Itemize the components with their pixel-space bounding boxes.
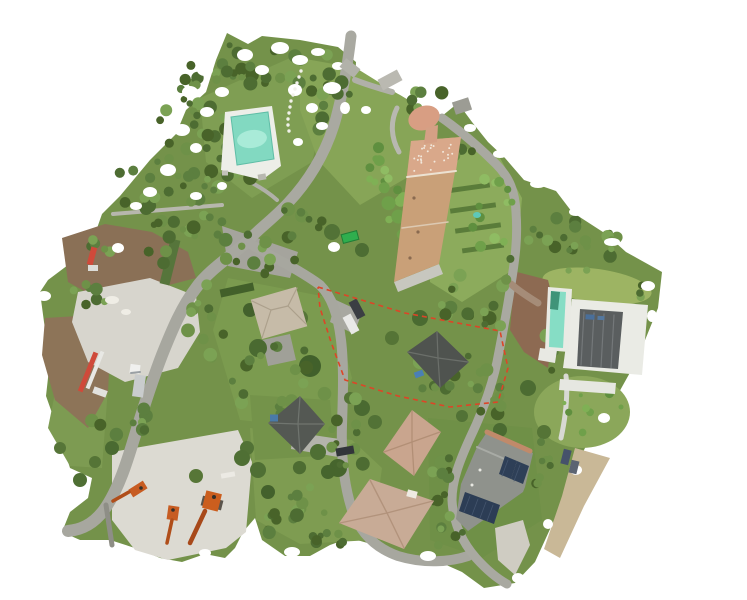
tree: [468, 223, 477, 232]
tree: [355, 243, 369, 257]
tree: [90, 283, 103, 296]
tree: [636, 289, 644, 297]
tree: [144, 247, 154, 257]
tree: [54, 442, 66, 454]
tree: [219, 330, 228, 339]
skylight: [585, 314, 594, 319]
mosaic-hole: [190, 192, 202, 200]
tree: [165, 139, 174, 148]
tree: [290, 256, 299, 265]
tree: [140, 425, 150, 435]
tree: [180, 74, 191, 85]
tree: [73, 473, 87, 487]
excavator-cab: [139, 486, 143, 490]
tree: [101, 246, 108, 253]
tree: [163, 230, 176, 243]
tree: [260, 270, 269, 279]
chimney: [416, 230, 419, 233]
tree: [407, 95, 418, 106]
tree: [244, 231, 252, 239]
tree: [520, 380, 536, 396]
tree: [324, 224, 340, 240]
tree: [579, 429, 587, 437]
tree: [437, 468, 449, 480]
excavator-body: [167, 505, 180, 520]
chimney: [412, 196, 415, 199]
tree: [81, 300, 91, 310]
tree: [288, 231, 297, 240]
mosaic-hole: [647, 310, 657, 322]
tree: [481, 321, 488, 328]
tree: [379, 182, 390, 193]
mosaic-hole: [182, 86, 198, 98]
tree: [560, 234, 567, 241]
tree: [415, 87, 426, 98]
mosaic-hole: [306, 103, 318, 113]
tree: [195, 300, 202, 307]
mosaic-hole: [361, 106, 371, 114]
mosaic-hole: [328, 242, 340, 252]
tree: [569, 221, 581, 233]
tree: [168, 216, 180, 228]
mosaic-hole: [512, 573, 524, 583]
tree: [454, 269, 467, 282]
mosaic-hole: [215, 87, 229, 97]
tree: [317, 216, 326, 225]
tree: [537, 425, 551, 439]
stepping-stone: [299, 69, 302, 72]
tree: [238, 74, 245, 81]
mosaic-hole: [493, 150, 507, 158]
tree: [438, 301, 446, 309]
tree: [321, 509, 328, 516]
chimney: [408, 256, 411, 259]
tree: [201, 183, 207, 189]
tree: [70, 286, 78, 294]
tree: [180, 226, 186, 232]
tree: [160, 245, 172, 257]
stepping-stone: [287, 129, 290, 132]
mosaic-hole: [340, 102, 350, 114]
tree: [312, 535, 322, 545]
tree: [120, 197, 131, 208]
tree: [297, 208, 306, 217]
tree: [299, 361, 313, 375]
tree: [539, 458, 546, 465]
skylight: [597, 316, 604, 320]
tree: [475, 241, 486, 252]
rubble: [105, 296, 119, 304]
tree: [89, 456, 101, 468]
tree: [250, 462, 266, 478]
tree: [154, 219, 163, 228]
tree: [263, 526, 276, 539]
tree: [535, 473, 544, 482]
tree: [219, 233, 233, 247]
mosaic-hole: [464, 124, 476, 132]
stepping-stone: [293, 87, 296, 90]
tree: [427, 466, 438, 477]
tree: [204, 176, 211, 183]
tree: [220, 253, 232, 265]
tree: [218, 217, 227, 226]
tree: [180, 182, 187, 189]
tree: [524, 236, 533, 245]
tree: [247, 256, 260, 269]
tree: [434, 541, 443, 550]
tree: [187, 100, 193, 106]
tree: [445, 454, 453, 462]
tree: [451, 531, 461, 541]
orthomosaic-image: [0, 0, 747, 600]
tree: [198, 334, 209, 345]
tree: [374, 155, 385, 166]
mosaic-hole: [143, 187, 157, 197]
mosaic-hole: [569, 208, 583, 216]
mosaic-hole: [543, 519, 553, 529]
tree: [530, 226, 537, 233]
tree: [380, 166, 389, 175]
tree: [245, 62, 255, 72]
tree: [495, 320, 506, 331]
excavator-cab: [171, 508, 175, 512]
tree: [204, 304, 213, 313]
small-pond: [473, 212, 481, 218]
tree: [326, 442, 337, 453]
tree: [384, 174, 392, 182]
mosaic-hole: [293, 138, 303, 146]
tarp: [270, 415, 278, 422]
tree: [202, 129, 214, 141]
tree: [306, 216, 313, 223]
stepping-stone: [286, 123, 289, 126]
mosaic-hole: [604, 238, 620, 246]
tree: [412, 310, 428, 326]
stepping-stone: [295, 81, 298, 84]
tree: [110, 428, 123, 441]
tree: [461, 307, 474, 320]
tree: [310, 444, 326, 460]
tree: [319, 101, 328, 110]
tree: [212, 75, 221, 84]
tree: [445, 511, 455, 521]
stepping-stone: [291, 93, 294, 96]
tree: [189, 469, 203, 483]
tree: [281, 207, 288, 214]
tree: [468, 147, 476, 155]
tree: [190, 120, 199, 129]
tree: [501, 275, 511, 285]
tree: [353, 429, 361, 437]
tree: [145, 173, 155, 183]
tree: [187, 220, 201, 234]
tree: [238, 243, 245, 250]
tree: [435, 86, 448, 99]
mosaic-hole: [190, 143, 202, 153]
tree: [439, 308, 451, 320]
mosaic-hole: [271, 42, 289, 54]
tree: [164, 187, 174, 197]
tree: [334, 530, 342, 538]
tree: [566, 268, 572, 274]
tree: [562, 401, 566, 405]
tree: [82, 280, 91, 289]
mosaic-hole: [200, 107, 214, 117]
tree: [508, 199, 515, 206]
tree: [115, 168, 125, 178]
tree: [500, 238, 508, 246]
tree: [183, 171, 194, 182]
tree: [437, 525, 444, 532]
tree: [201, 279, 212, 290]
tree: [203, 144, 211, 152]
tree: [300, 347, 308, 355]
tree: [356, 457, 370, 471]
tree: [229, 378, 236, 385]
tree: [290, 508, 304, 522]
tree: [321, 465, 335, 479]
tree: [468, 381, 474, 387]
tree: [298, 378, 308, 388]
tree: [292, 490, 303, 501]
tree: [164, 154, 173, 163]
tree: [221, 66, 233, 78]
tree: [128, 166, 138, 176]
tree: [156, 116, 164, 124]
tree: [583, 267, 590, 274]
mosaic-hole: [174, 124, 190, 136]
tree: [245, 355, 255, 365]
tree: [323, 529, 331, 537]
stepping-stone: [289, 99, 292, 102]
mosaic-hole: [237, 49, 253, 61]
tree: [489, 233, 500, 244]
mosaic-hole: [311, 48, 325, 56]
tree: [418, 384, 426, 392]
tree: [550, 212, 562, 224]
tree: [275, 73, 285, 83]
mosaic-hole: [217, 182, 227, 190]
mosaic-hole: [199, 549, 211, 557]
tree: [310, 75, 317, 82]
tree: [385, 331, 399, 345]
tree: [480, 308, 489, 317]
tree: [206, 213, 214, 221]
stepping-stone: [286, 117, 289, 120]
tree: [186, 61, 195, 70]
tree: [181, 324, 195, 338]
stepping-stone: [288, 105, 291, 108]
tree: [536, 232, 543, 239]
mosaic-hole: [112, 243, 124, 253]
tree: [270, 343, 278, 351]
mosaic-hole: [598, 413, 610, 423]
tree: [506, 255, 514, 263]
tree: [582, 404, 590, 412]
tree: [293, 461, 306, 474]
pallet: [88, 265, 98, 271]
tree: [261, 485, 275, 499]
tree: [366, 163, 375, 172]
tree: [264, 254, 276, 266]
tree: [448, 286, 455, 293]
tree: [210, 187, 217, 194]
tree: [571, 242, 579, 250]
mosaic-hole: [284, 547, 300, 557]
tree: [548, 367, 555, 374]
tree: [207, 312, 216, 321]
tree: [137, 403, 150, 416]
tree: [157, 257, 170, 270]
tree: [186, 307, 196, 317]
tree: [489, 301, 499, 311]
tree: [175, 173, 181, 179]
orthomosaic-svg: [0, 0, 747, 600]
tree: [368, 415, 382, 429]
tree: [243, 77, 257, 91]
tree: [542, 235, 553, 246]
mosaic-hole: [160, 164, 176, 176]
mosaic-hole: [323, 82, 341, 94]
tree: [373, 142, 384, 153]
tree: [619, 405, 624, 410]
tree: [456, 410, 468, 422]
tree: [193, 112, 200, 119]
tree: [465, 353, 472, 360]
tree: [239, 389, 249, 399]
tree: [565, 409, 572, 416]
tree: [393, 186, 402, 195]
tree: [88, 235, 98, 245]
tree: [290, 364, 301, 375]
mosaic-hole: [353, 544, 367, 552]
tree: [328, 426, 336, 434]
mosaic-hole: [37, 291, 51, 301]
tree: [130, 419, 137, 426]
tree: [306, 483, 314, 491]
tree: [473, 383, 483, 393]
roof-vent: [479, 469, 482, 472]
tree: [269, 508, 280, 519]
tree: [579, 393, 583, 397]
tree: [494, 177, 504, 187]
mosaic-hole: [242, 536, 262, 552]
tree: [476, 368, 485, 377]
tree: [257, 352, 264, 359]
tree: [338, 538, 347, 547]
mosaic-hole: [197, 64, 213, 76]
tree: [306, 85, 317, 96]
roof-vent: [471, 484, 474, 487]
stepping-stone: [297, 75, 300, 78]
tree: [546, 455, 553, 462]
tree: [504, 186, 511, 193]
mosaic-hole: [130, 202, 142, 210]
tree: [537, 438, 545, 446]
deck-structure: [222, 171, 228, 176]
tree: [318, 387, 332, 401]
mosaic-hole: [292, 55, 308, 65]
tree: [337, 461, 344, 468]
tree: [343, 462, 349, 468]
tree: [479, 174, 490, 185]
tree: [204, 348, 218, 362]
tree: [234, 450, 250, 466]
tree: [160, 104, 172, 116]
tree: [445, 381, 455, 391]
tree: [94, 419, 106, 431]
tree: [382, 196, 396, 210]
tree: [331, 415, 343, 427]
tree: [277, 396, 288, 407]
truck-windshield: [131, 372, 140, 373]
tree: [154, 159, 160, 165]
tree: [349, 392, 362, 405]
tree: [580, 235, 591, 246]
tree: [547, 462, 554, 469]
tree: [476, 407, 485, 416]
rubble: [121, 309, 131, 315]
tree: [227, 42, 233, 48]
tree: [105, 441, 119, 455]
mosaic-hole: [420, 551, 436, 561]
mosaic-hole: [530, 180, 546, 188]
tree: [323, 67, 336, 80]
tree: [346, 91, 353, 98]
mosaic-hole: [316, 122, 328, 130]
tree: [233, 258, 240, 265]
tree: [608, 246, 614, 252]
excavator-cab: [212, 495, 216, 499]
tree: [259, 236, 272, 249]
mosaic-hole: [255, 65, 269, 75]
stepping-stone: [287, 111, 290, 114]
mosaic-hole: [641, 281, 655, 291]
tree: [476, 203, 483, 210]
tree: [366, 176, 373, 183]
tree: [351, 420, 361, 430]
